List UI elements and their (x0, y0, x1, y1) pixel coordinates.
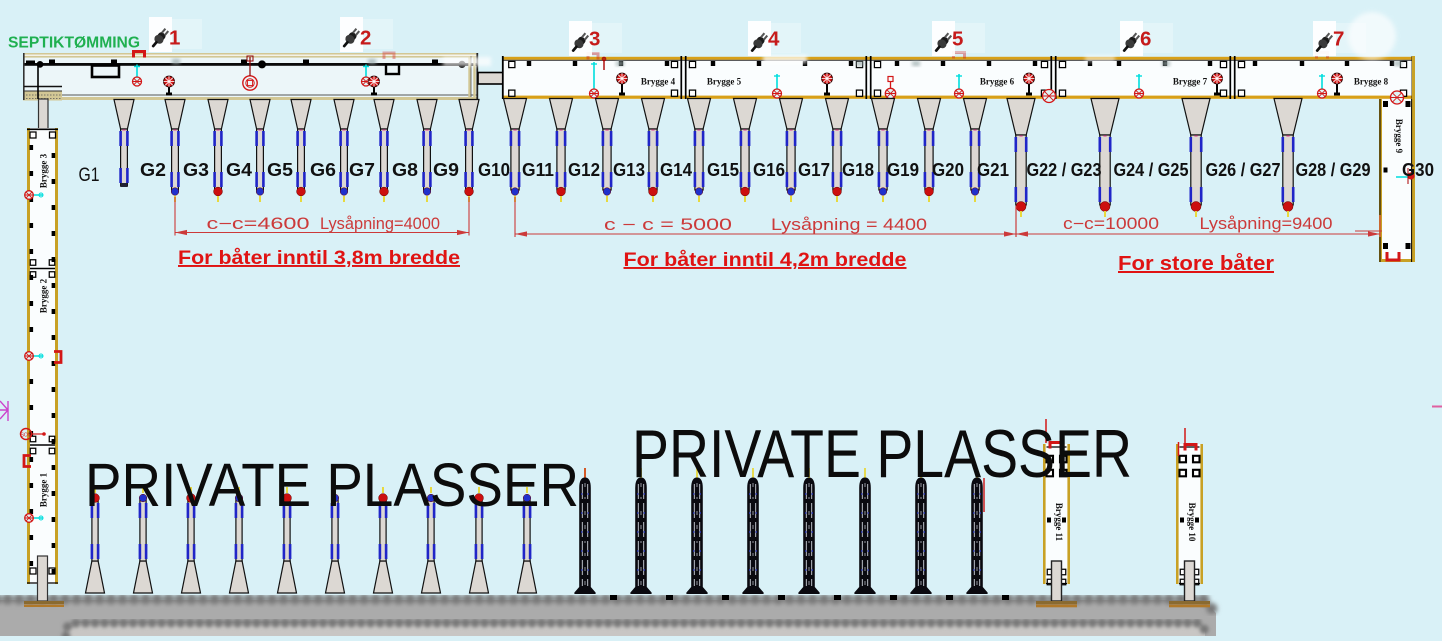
svg-text:G9: G9 (433, 160, 459, 180)
svg-text:G20: G20 (932, 160, 964, 180)
svg-text:Brygge 1: Brygge 1 (39, 472, 49, 507)
svg-text:3: 3 (589, 27, 600, 50)
svg-text:SEPTIKTØMMING: SEPTIKTØMMING (8, 34, 140, 51)
svg-text:c−c=10000: c−c=10000 (1063, 215, 1159, 233)
svg-text:G3: G3 (183, 160, 209, 180)
svg-text:2: 2 (360, 27, 371, 50)
svg-text:5: 5 (952, 27, 963, 50)
svg-text:For store båter: For store båter (1118, 252, 1274, 275)
svg-text:PRIVATE PLASSER: PRIVATE PLASSER (85, 451, 579, 519)
svg-text:Brygge 2: Brygge 2 (39, 278, 49, 313)
svg-text:G14: G14 (660, 160, 692, 180)
svg-text:Brygge 8: Brygge 8 (1354, 77, 1389, 87)
svg-text:G15: G15 (707, 160, 739, 180)
svg-text:Brygge 5: Brygge 5 (707, 77, 742, 87)
svg-text:G8: G8 (392, 160, 418, 180)
svg-text:G11: G11 (522, 160, 554, 180)
svg-text:Brygge 11: Brygge 11 (1054, 503, 1064, 542)
svg-text:Brygge 10: Brygge 10 (1187, 503, 1197, 542)
svg-text:Brygge 6: Brygge 6 (980, 77, 1015, 87)
svg-text:G28 / G29: G28 / G29 (1296, 160, 1371, 180)
svg-text:c−c=4600: c−c=4600 (207, 215, 310, 233)
svg-text:G18: G18 (842, 160, 874, 180)
svg-text:G16: G16 (753, 160, 785, 180)
svg-text:G19: G19 (887, 160, 919, 180)
svg-text:Lysåpning=4000: Lysåpning=4000 (320, 215, 440, 233)
svg-text:For båter inntil 4,2m bredde: For båter inntil 4,2m bredde (624, 248, 907, 271)
svg-text:For båter inntil 3,8m bredde: For båter inntil 3,8m bredde (178, 246, 460, 269)
svg-text:Lysåpning=9400: Lysåpning=9400 (1200, 215, 1333, 233)
svg-text:G4: G4 (226, 160, 252, 180)
svg-text:7: 7 (1333, 27, 1344, 50)
svg-text:Brygge 3: Brygge 3 (39, 153, 49, 188)
svg-text:G30: G30 (1402, 160, 1434, 180)
svg-text:Brygge 7: Brygge 7 (1173, 77, 1208, 87)
svg-text:G21: G21 (977, 160, 1009, 180)
svg-text:4: 4 (768, 27, 780, 50)
svg-text:G12: G12 (568, 160, 600, 180)
svg-text:G24 / G25: G24 / G25 (1114, 160, 1189, 180)
svg-text:G6: G6 (310, 160, 336, 180)
svg-text:SON: SON (21, 433, 32, 439)
svg-text:G26 / G27: G26 / G27 (1206, 160, 1281, 180)
svg-text:PRIVATE PLASSER: PRIVATE PLASSER (632, 416, 1132, 492)
svg-text:G5: G5 (267, 160, 293, 180)
svg-text:1: 1 (169, 27, 180, 50)
svg-text:c − c = 5000: c − c = 5000 (604, 216, 732, 234)
svg-text:G10: G10 (478, 160, 510, 180)
svg-text:Brygge 4: Brygge 4 (641, 77, 676, 87)
svg-text:G2: G2 (140, 160, 166, 180)
svg-text:G22 / G23: G22 / G23 (1027, 160, 1102, 180)
svg-text:G17: G17 (798, 160, 830, 180)
svg-text:G7: G7 (349, 160, 375, 180)
svg-text:G1: G1 (79, 165, 100, 186)
svg-text:Lysåpning = 4400: Lysåpning = 4400 (771, 216, 927, 234)
svg-text:6: 6 (1140, 27, 1151, 50)
svg-text:Brygge 9: Brygge 9 (1394, 119, 1404, 154)
svg-text:G13: G13 (613, 160, 645, 180)
